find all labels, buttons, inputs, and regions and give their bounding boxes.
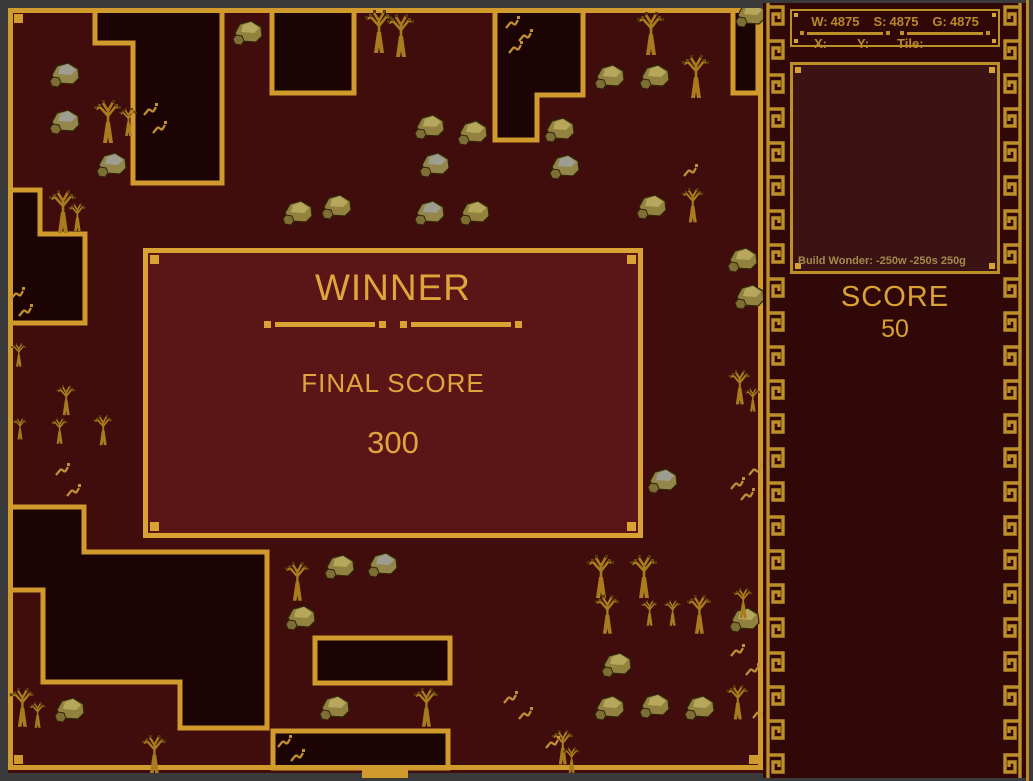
meander-border-left — [763, 3, 787, 778]
gold-stat: G:4875 — [932, 14, 978, 29]
panel-corner-ornament — [992, 39, 996, 43]
winner-dialog: WINNER FINAL SCORE 300 — [143, 248, 643, 538]
panel-corner-ornament — [992, 13, 996, 17]
panel-corner-ornament — [794, 13, 798, 17]
minimap-panel[interactable]: Build Wonder: -250w -250s 250g — [790, 62, 1000, 274]
final-score-value: 300 — [148, 425, 638, 461]
dialog-corner-ornament — [150, 255, 159, 264]
resource-panel: W:4875 S:4875 G:4875 X: Y: Tile: — [790, 9, 1000, 47]
build-wonder-hint: Build Wonder: -250w -250s 250g — [798, 255, 966, 267]
meander-border-right — [1001, 3, 1025, 778]
cursor-x-label: X: — [814, 36, 827, 51]
cursor-info-row: X: Y: Tile: — [792, 36, 998, 51]
winner-title: WINNER — [148, 267, 638, 309]
sidebar: W:4875 S:4875 G:4875 X: Y: Tile: — [763, 3, 1028, 778]
resource-row: W:4875 S:4875 G:4875 — [792, 14, 998, 29]
panel-corner-ornament — [989, 263, 995, 269]
dialog-corner-ornament — [627, 522, 636, 531]
title-divider — [148, 321, 638, 328]
score-label: SCORE — [790, 281, 1000, 314]
final-score-label: FINAL SCORE — [148, 368, 638, 399]
dialog-corner-ornament — [150, 522, 159, 531]
wood-stat: W:4875 — [811, 14, 859, 29]
stats-divider — [792, 31, 998, 35]
panel-corner-ornament — [795, 67, 801, 73]
map-bottom-tab — [362, 766, 408, 778]
window-right-trim — [1026, 0, 1029, 781]
dialog-corner-ornament — [627, 255, 636, 264]
panel-corner-ornament — [794, 39, 798, 43]
panel-corner-ornament — [989, 67, 995, 73]
cursor-tile-label: Tile: — [897, 36, 924, 51]
stone-stat: S:4875 — [874, 14, 919, 29]
cursor-y-label: Y: — [857, 36, 869, 51]
score-value: 50 — [790, 315, 1000, 344]
game-window: WINNER FINAL SCORE 300 — [0, 0, 1033, 781]
